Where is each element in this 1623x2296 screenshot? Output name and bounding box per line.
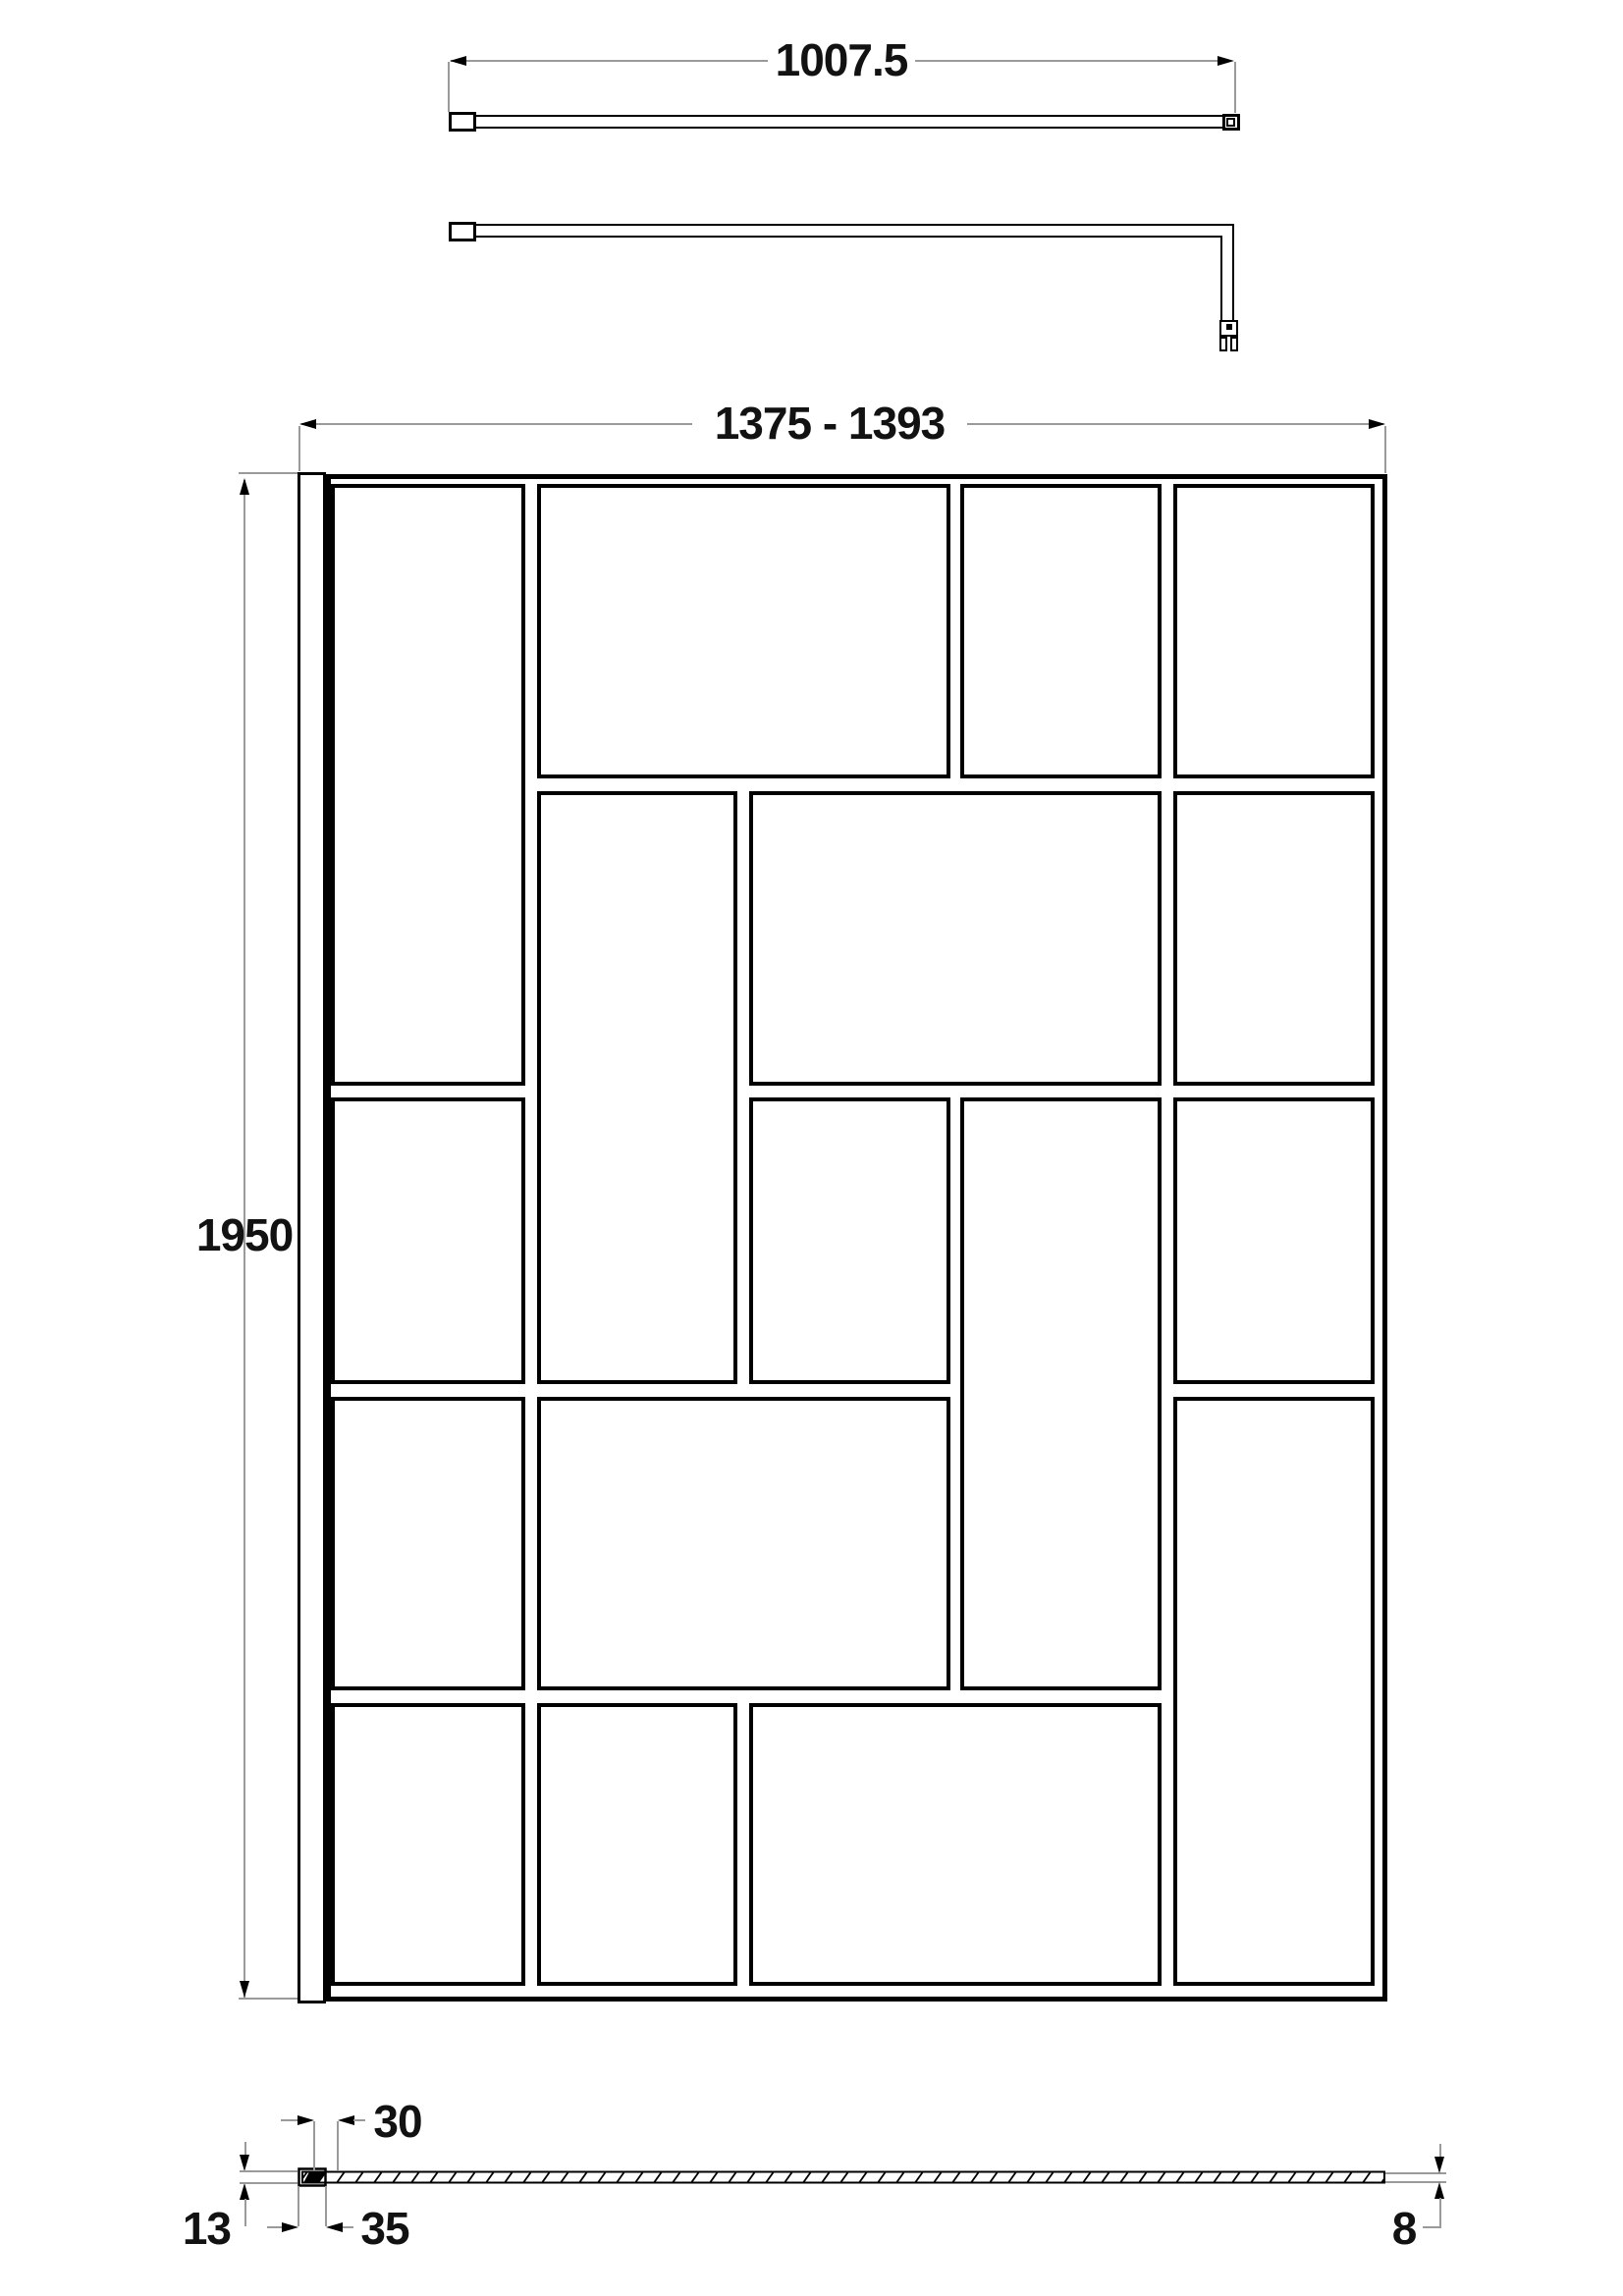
technical-drawing: 1007.5 1375 - 1393 1950 [0, 0, 1623, 2296]
arrowhead-down-icon [1434, 2157, 1444, 2173]
extension-line [239, 472, 298, 474]
glass-pane-Q [749, 1703, 1162, 1986]
support-bar-tube-side [474, 224, 1234, 238]
extension-line [1234, 62, 1236, 113]
wall-channel-profile [298, 472, 326, 2003]
arrowhead-down-icon [240, 2155, 249, 2171]
extension-line [448, 62, 450, 112]
dimension-line [1439, 2198, 1441, 2228]
arrowhead-right-icon [298, 2115, 314, 2125]
wall-fixing-cap [449, 112, 476, 132]
profile-width-label: 35 [346, 2206, 424, 2251]
arrowhead-left-icon [299, 419, 316, 429]
glass-pane-P [537, 1703, 737, 1986]
dimension-line [967, 423, 1383, 425]
arrowhead-left-icon [326, 2222, 343, 2232]
plan-view-glass-section [298, 2167, 1387, 2187]
screen-height-label: 1950 [171, 1212, 318, 1257]
glass-pane-F [749, 791, 1162, 1086]
clamp-prong-left [1219, 337, 1227, 351]
wall-fixing-cap-side [449, 222, 476, 241]
glass-pane-C [960, 484, 1162, 778]
glass-pane-G [1173, 791, 1375, 1086]
arrowhead-right-icon [1369, 419, 1385, 429]
glass-bracket-inner [1226, 118, 1235, 127]
glass-pane-K [1173, 1097, 1375, 1384]
dimension-line [915, 60, 1231, 62]
arrowhead-up-icon [240, 2183, 249, 2200]
arrowhead-right-icon [282, 2222, 298, 2232]
extension-line [298, 2186, 299, 2226]
arrowhead-up-icon [240, 478, 249, 495]
arrowhead-down-icon [240, 1981, 249, 1998]
extension-line [313, 2121, 315, 2170]
support-bar-length-label: 1007.5 [743, 37, 940, 82]
glass-pane-L [331, 1397, 525, 1690]
dimension-line [267, 2226, 282, 2228]
dimension-line [244, 2199, 246, 2226]
glass-pane-H [331, 1097, 525, 1384]
extension-line [337, 2121, 339, 2170]
glass-pane-I [749, 1097, 950, 1384]
glass-pane-N [1173, 1397, 1375, 1986]
clamp-screw-hole-icon [1226, 324, 1232, 330]
profile-depth-label: 30 [353, 2099, 442, 2144]
dimension-line [451, 60, 768, 62]
profile-height-label: 13 [147, 2206, 231, 2251]
extension-line [240, 2170, 298, 2172]
glass-pane-B [537, 484, 950, 778]
screen-width-label: 1375 - 1393 [692, 400, 967, 446]
glass-pane-A [331, 484, 525, 1086]
bend-joint [1223, 235, 1232, 239]
glass-pane-E [537, 791, 737, 1384]
arrowhead-right-icon [1217, 56, 1234, 66]
arrowhead-left-icon [450, 56, 466, 66]
support-bar-tube [474, 115, 1225, 129]
dimension-line [301, 423, 692, 425]
arrowhead-up-icon [1434, 2182, 1444, 2199]
glass-thickness-label: 8 [1380, 2206, 1429, 2251]
glass-pane-M [537, 1397, 950, 1690]
extension-line [1384, 426, 1386, 473]
extension-line [240, 2182, 298, 2184]
extension-line [298, 426, 300, 471]
dimension-line [244, 2142, 246, 2156]
glass-pane-O [331, 1703, 525, 1986]
glass-panel-section [302, 2172, 1384, 2183]
bar-bend-vertical [1220, 236, 1234, 322]
clamp-prong-right [1230, 337, 1238, 351]
extension-line [239, 1998, 298, 2000]
glass-pane-D [1173, 484, 1375, 778]
extension-line [325, 2186, 327, 2226]
arrowhead-left-icon [338, 2115, 354, 2125]
glass-pane-J [960, 1097, 1162, 1690]
